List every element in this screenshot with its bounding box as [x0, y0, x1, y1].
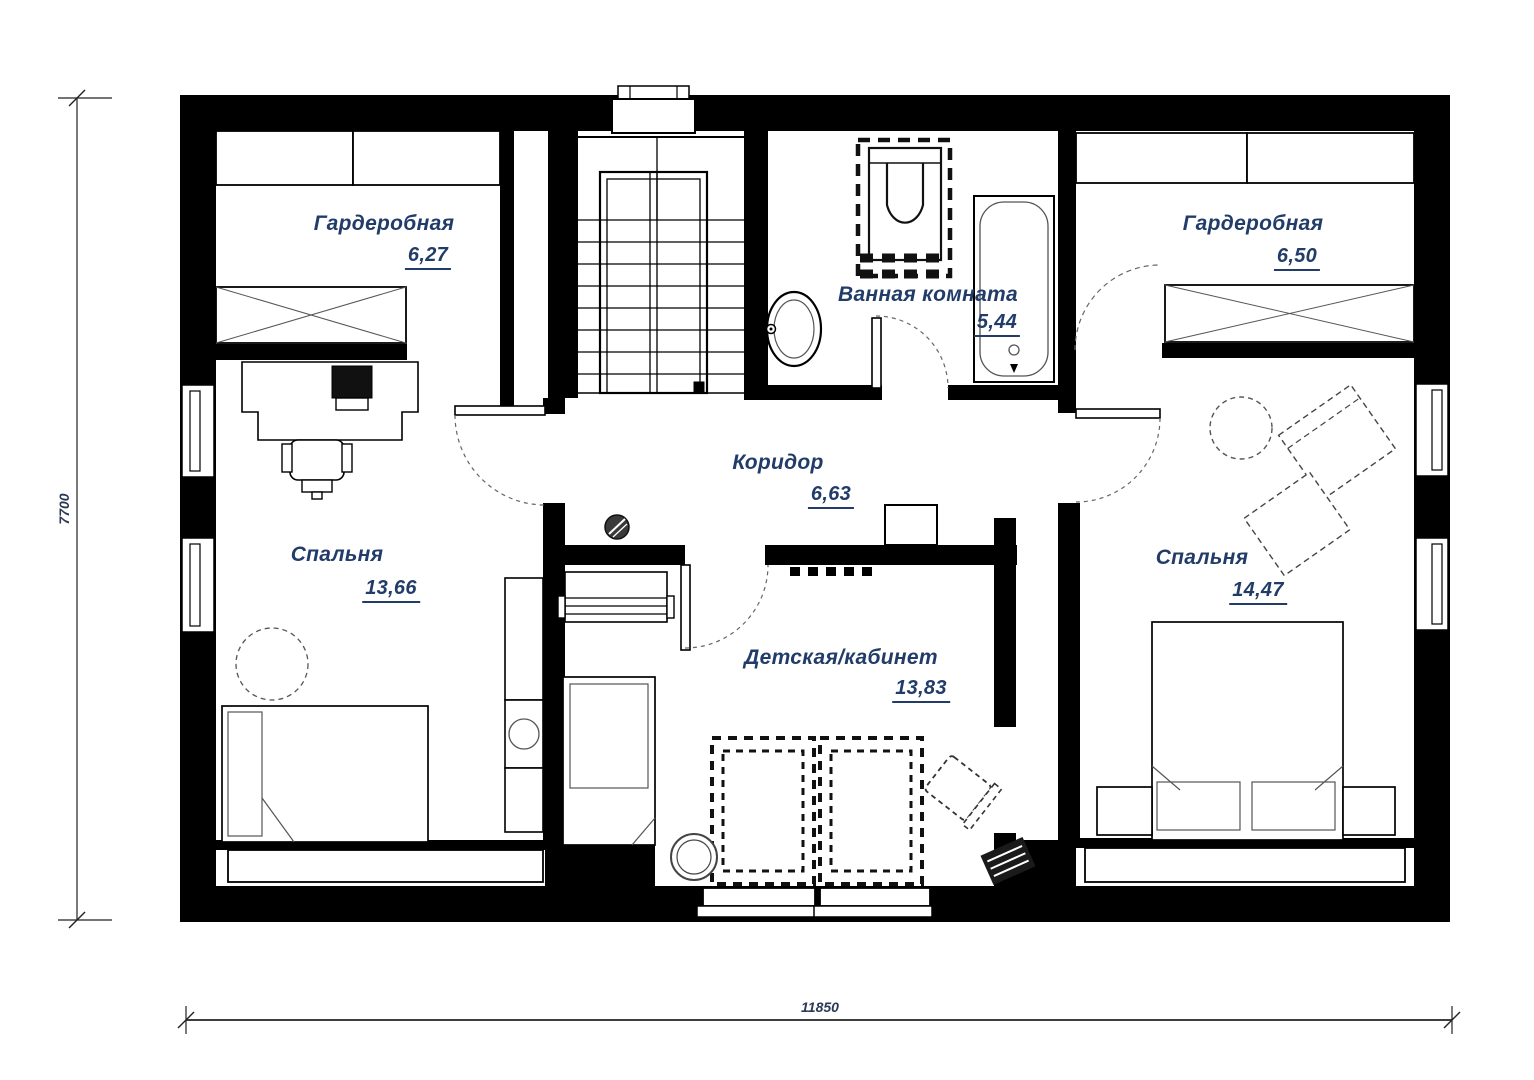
room-label-bedroom-left: Спальня [291, 543, 384, 567]
room-area-wardrobe-right: 6,50 [1274, 245, 1320, 271]
door-wardrobe-right-arc [1075, 265, 1160, 350]
bed-single-children [563, 677, 655, 845]
dimension-width: 11850 [801, 999, 839, 1015]
desk-and-chair [242, 362, 418, 499]
stair-railing [600, 172, 707, 393]
dashed-desk-1 [712, 738, 814, 884]
bed-single-left [222, 706, 428, 842]
room-area-corridor: 6,63 [808, 483, 854, 509]
bathroom-sink [767, 292, 822, 366]
bedroom-left-furniture [222, 578, 543, 842]
floor-plan-drawing [0, 0, 1534, 1080]
room-area-bedroom-right: 14,47 [1229, 579, 1287, 605]
window-left-upper [182, 385, 214, 477]
room-label-children-room: Детская/кабинет [744, 646, 938, 670]
room-area-bedroom-left: 13,66 [362, 577, 420, 603]
window-bottom-left [228, 850, 543, 882]
monitor [332, 366, 372, 398]
room-label-corridor: Коридор [732, 451, 823, 475]
room-area-wardrobe-left: 6,27 [405, 244, 451, 270]
dashed-desk-2 [820, 738, 922, 884]
round-table-circle [1210, 397, 1272, 459]
nightstand-left [1097, 787, 1152, 835]
floor-plan: Гардеробная 6,27 Ванная комната 5,44 Гар… [0, 0, 1534, 1080]
room-area-children-room: 13,83 [892, 677, 950, 703]
bathroom-fixtures [767, 140, 1055, 382]
shower-unit [858, 140, 950, 276]
office-chair [282, 440, 352, 499]
window-right-upper [1416, 384, 1448, 476]
staircase [578, 137, 744, 393]
nightstand-right [1343, 787, 1395, 835]
radiator [558, 572, 674, 622]
window-left-lower [182, 538, 214, 632]
dormer-window-top [612, 86, 695, 133]
corridor-cabinet [885, 505, 937, 545]
room-label-bathroom: Ванная комната [838, 283, 1018, 307]
closet-crossed-left [216, 287, 406, 343]
dimension-height: 7700 [56, 493, 72, 524]
closet-crossed-right [1165, 285, 1414, 342]
chair-circle [671, 834, 717, 880]
pouf-circle [236, 628, 308, 700]
window-bottom-right [1085, 848, 1405, 882]
door-bedroom-left [455, 406, 545, 505]
wardrobe-left-furniture [216, 131, 500, 343]
room-label-wardrobe-right: Гардеробная [1183, 212, 1323, 236]
bed-double [1152, 622, 1343, 840]
window-children-1 [697, 888, 817, 917]
window-right-lower [1416, 538, 1448, 630]
tilted-chair [922, 752, 1002, 831]
room-area-bathroom: 5,44 [974, 311, 1020, 337]
door-bathroom [872, 316, 948, 388]
wardrobe-right-furniture [1076, 133, 1414, 342]
room-label-bedroom-right: Спальня [1156, 546, 1249, 570]
door-bedroom-right [1076, 409, 1160, 502]
floor-drain-circle [605, 515, 629, 539]
room-label-wardrobe-left: Гардеробная [314, 212, 454, 236]
window-children-2 [814, 888, 932, 917]
door-children-room [681, 565, 768, 650]
closet-column [505, 578, 543, 832]
bedroom-right-furniture [1097, 385, 1395, 840]
